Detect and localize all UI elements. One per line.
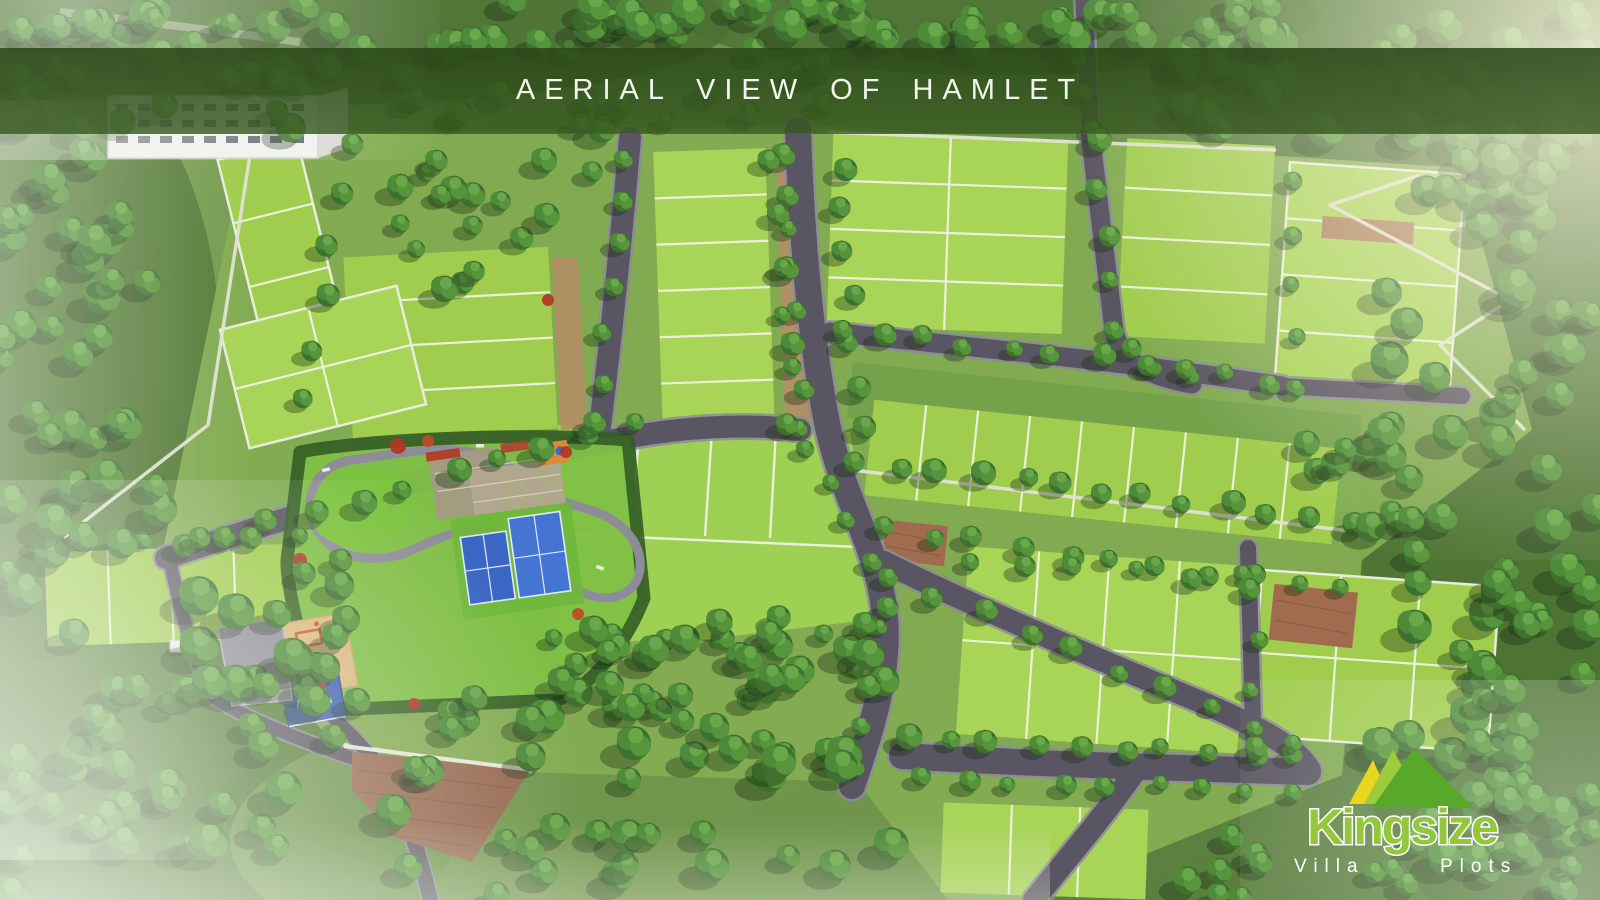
banner-title: AERIAL VIEW OF HAMLET <box>516 74 1084 107</box>
plot-block <box>653 148 775 430</box>
title-banner: AERIAL VIEW OF HAMLET <box>0 48 1600 134</box>
logo-tagline-villa: Villa <box>1294 856 1365 877</box>
kingsize-logo: Kingsize Villa Plots <box>1252 740 1552 882</box>
logo-tagline-plots: Plots <box>1440 856 1517 877</box>
aerial-view-page: AERIAL VIEW OF HAMLET Kingsize Villa Plo… <box>0 0 1600 900</box>
logo-brand-text: Kingsize <box>1307 799 1498 855</box>
